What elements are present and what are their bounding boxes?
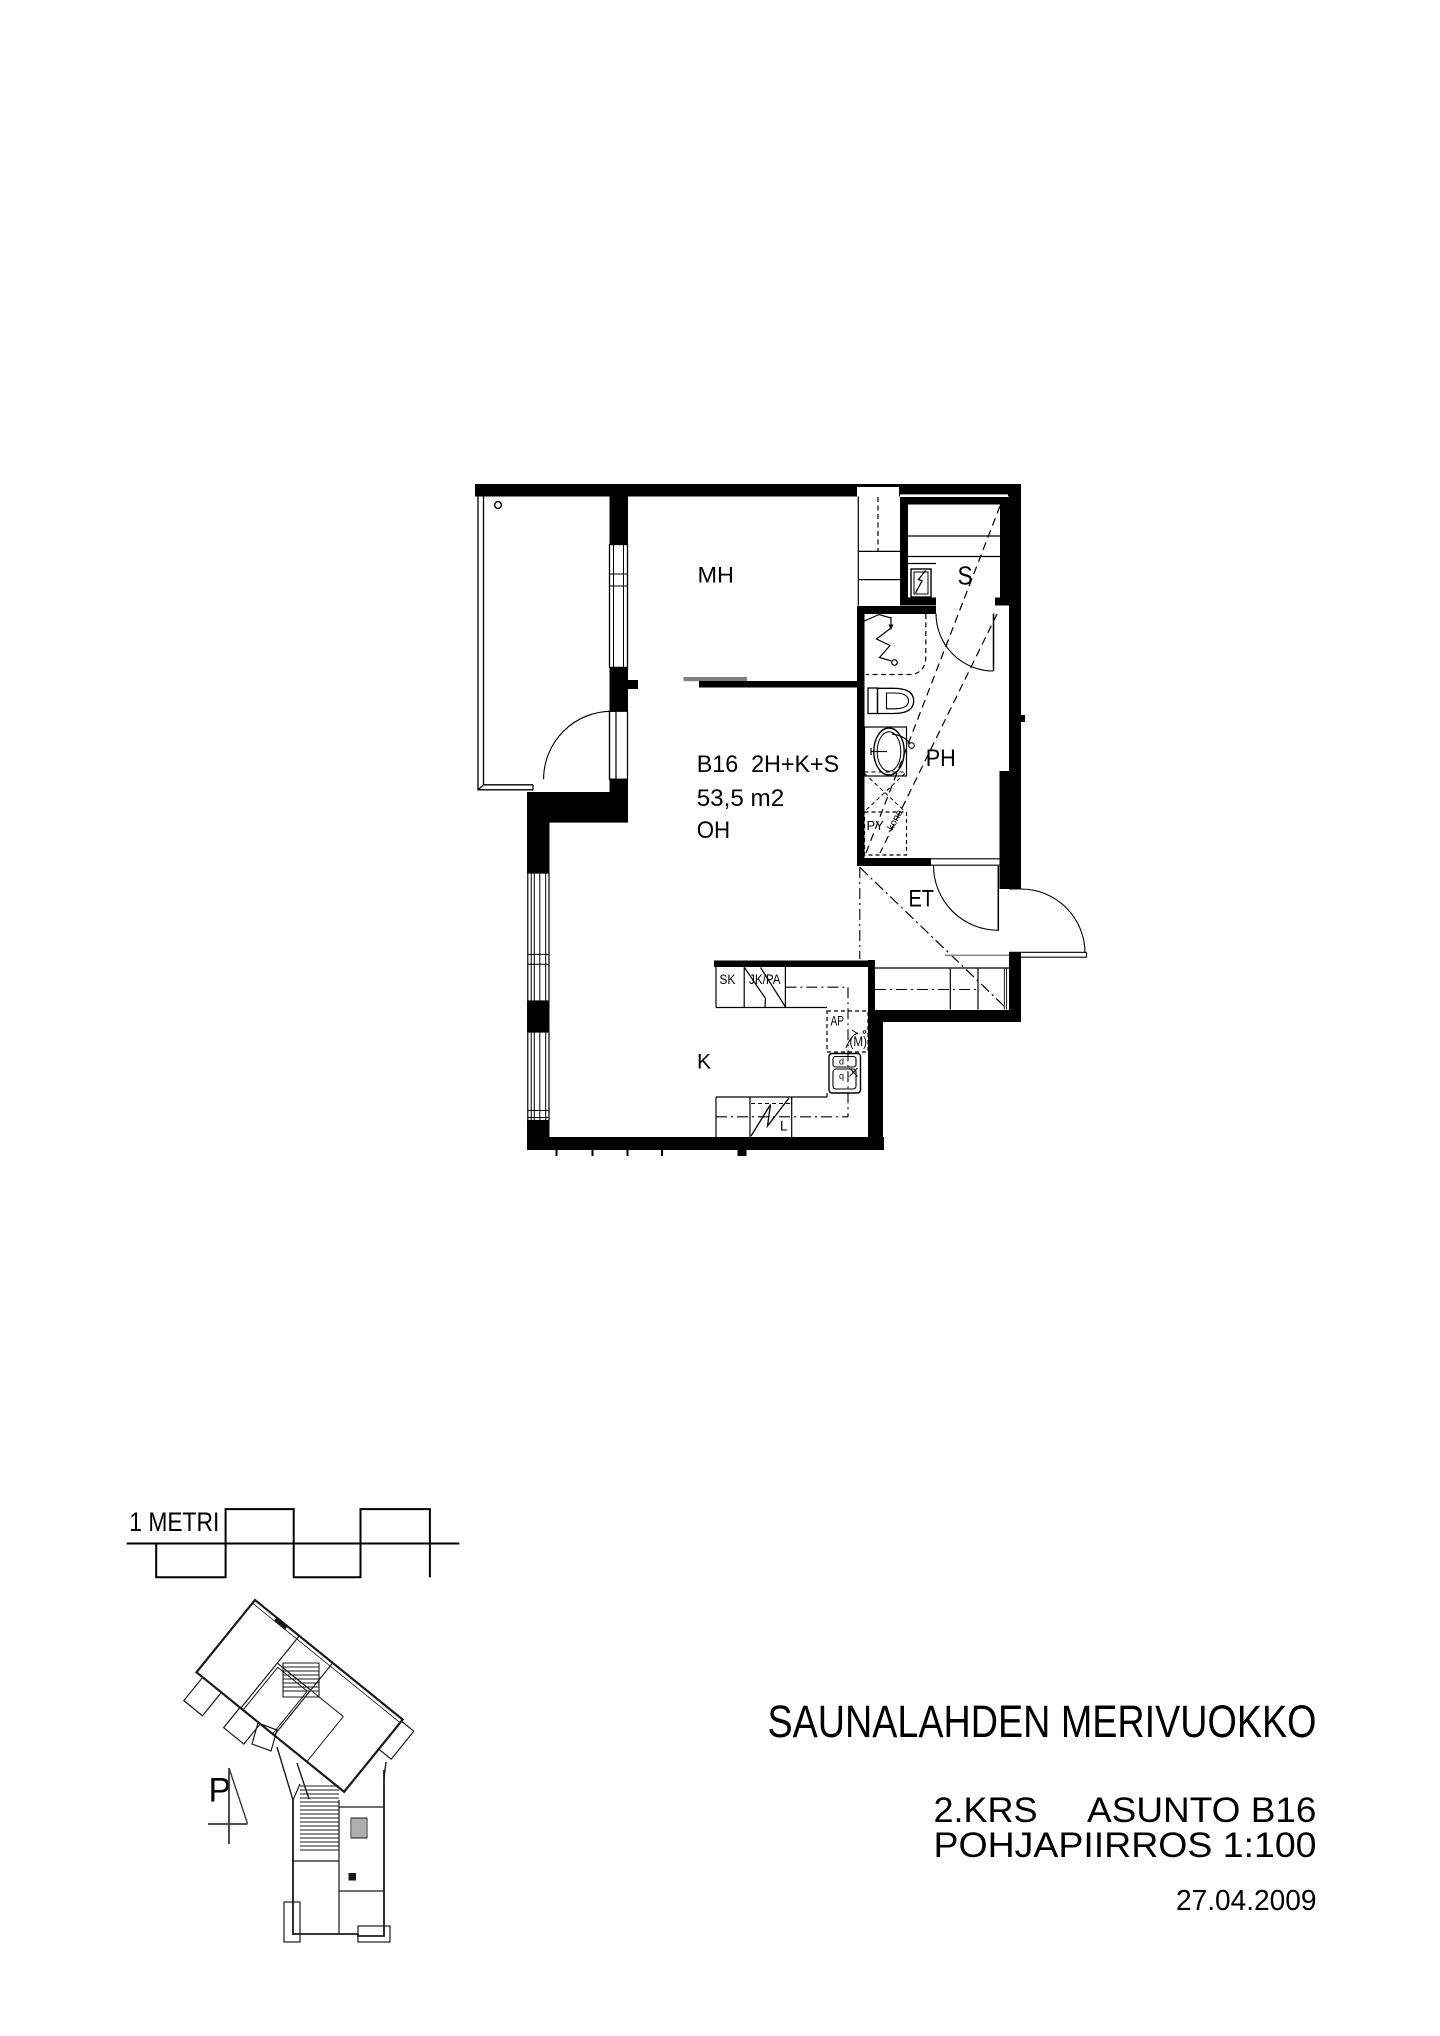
svg-text:P: P	[209, 1772, 232, 1810]
svg-text:JK/PA: JK/PA	[749, 972, 781, 987]
svg-text:SAUNALAHDEN MERIVUOKKO: SAUNALAHDEN MERIVUOKKO	[768, 1696, 1317, 1747]
svg-text:q: q	[839, 1071, 844, 1081]
svg-text:d: d	[839, 1057, 844, 1067]
svg-text:53,5 m2: 53,5 m2	[697, 785, 785, 812]
svg-text:2.KRS: 2.KRS	[934, 1790, 1038, 1830]
svg-text:ET: ET	[909, 886, 935, 913]
svg-text:S: S	[958, 561, 973, 591]
svg-text:ASUNTO B16: ASUNTO B16	[1087, 1790, 1317, 1830]
svg-text:PY: PY	[867, 818, 885, 833]
svg-text:OH: OH	[697, 817, 731, 844]
svg-text:SK: SK	[719, 972, 735, 987]
svg-text:K: K	[697, 1050, 712, 1074]
svg-text:1 METRI: 1 METRI	[129, 1507, 219, 1537]
svg-text:27.04.2009: 27.04.2009	[1176, 1885, 1317, 1917]
svg-text:POHJAPIIRROS 1:100: POHJAPIIRROS 1:100	[934, 1825, 1317, 1865]
svg-text:AP: AP	[831, 1014, 845, 1029]
svg-text:B16 2H+K+S: B16 2H+K+S	[697, 751, 840, 778]
svg-text:MH: MH	[698, 563, 735, 588]
svg-text:L: L	[780, 1119, 788, 1134]
svg-text:PH: PH	[926, 745, 956, 772]
svg-text:(M): (M)	[850, 1034, 868, 1049]
